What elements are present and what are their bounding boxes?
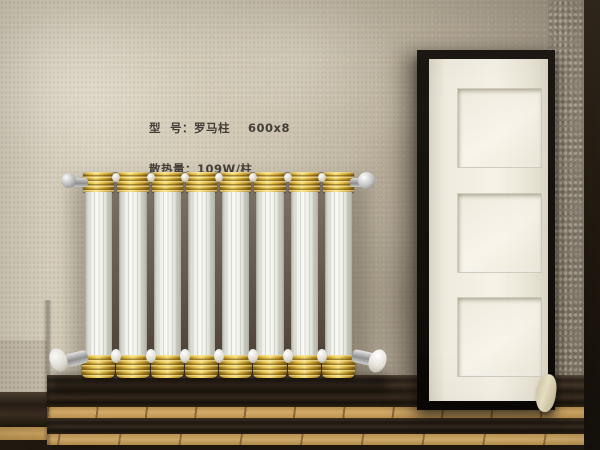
radiator-column	[222, 172, 249, 378]
door-panel	[457, 193, 542, 273]
radiator-column	[291, 172, 318, 378]
corner-wood-strip	[0, 427, 47, 440]
door-panel	[457, 297, 542, 377]
column-gold-base	[253, 355, 286, 378]
room-corner	[0, 340, 47, 450]
column-gold-base	[185, 355, 218, 378]
column-gold-cap	[117, 172, 148, 192]
column-white-tube	[119, 192, 146, 355]
product-photo: 型 号：罗马柱 600x8 散热量 109W/柱 型 号：罗马柱 600x8 散…	[0, 0, 600, 450]
column-gold-cap	[186, 172, 217, 192]
baseboard-step	[0, 418, 600, 434]
column-bottom-joint	[146, 349, 156, 363]
column-top-joint	[284, 173, 292, 182]
column-bottom-joint	[283, 349, 293, 363]
radiator-column	[154, 172, 181, 378]
column-top-joint	[147, 173, 155, 182]
corner-shadow-line	[43, 300, 52, 450]
radiator-column	[188, 172, 215, 378]
radiator-column	[85, 172, 112, 378]
column-white-tube	[256, 192, 283, 355]
column-bottom-joint	[214, 349, 224, 363]
radiator-column	[325, 172, 352, 378]
top-spec-label: 型 号：罗马柱 600x8 散热量 109W/柱	[211, 8, 431, 41]
baseboard-bottom	[0, 445, 600, 450]
column-gold-base	[116, 355, 149, 378]
column-white-tube	[291, 192, 318, 355]
column-gold-cap	[220, 172, 251, 192]
corner-baseboard-low	[0, 440, 47, 450]
column-gold-base	[219, 355, 252, 378]
spec-model-line: 型 号：罗马柱 600x8	[149, 122, 290, 136]
column-bottom-joint	[317, 349, 327, 363]
column-gold-base	[322, 355, 355, 378]
radiator-column	[256, 172, 283, 378]
door-panel	[457, 88, 542, 168]
column-gold-cap	[289, 172, 320, 192]
column-bottom-joint	[180, 349, 190, 363]
column-top-joint	[215, 173, 223, 182]
radiator-top-right-plug	[358, 172, 375, 189]
radiator-top-left-plug	[61, 173, 76, 188]
column-white-tube	[188, 192, 215, 355]
radiator	[85, 172, 352, 378]
corner-wall-patch	[0, 340, 47, 392]
column-top-joint	[181, 173, 189, 182]
column-white-tube	[85, 192, 112, 355]
wood-floor-strip-2	[0, 434, 600, 445]
column-top-joint	[318, 173, 326, 182]
door-face	[429, 59, 548, 401]
column-gold-cap	[152, 172, 183, 192]
column-white-tube	[325, 192, 352, 355]
door	[417, 50, 555, 410]
radiator-column	[119, 172, 146, 378]
column-gold-cap	[254, 172, 285, 192]
column-white-tube	[154, 192, 181, 355]
right-edge-dark-band	[584, 0, 600, 450]
column-white-tube	[222, 192, 249, 355]
corner-baseboard	[0, 392, 47, 427]
